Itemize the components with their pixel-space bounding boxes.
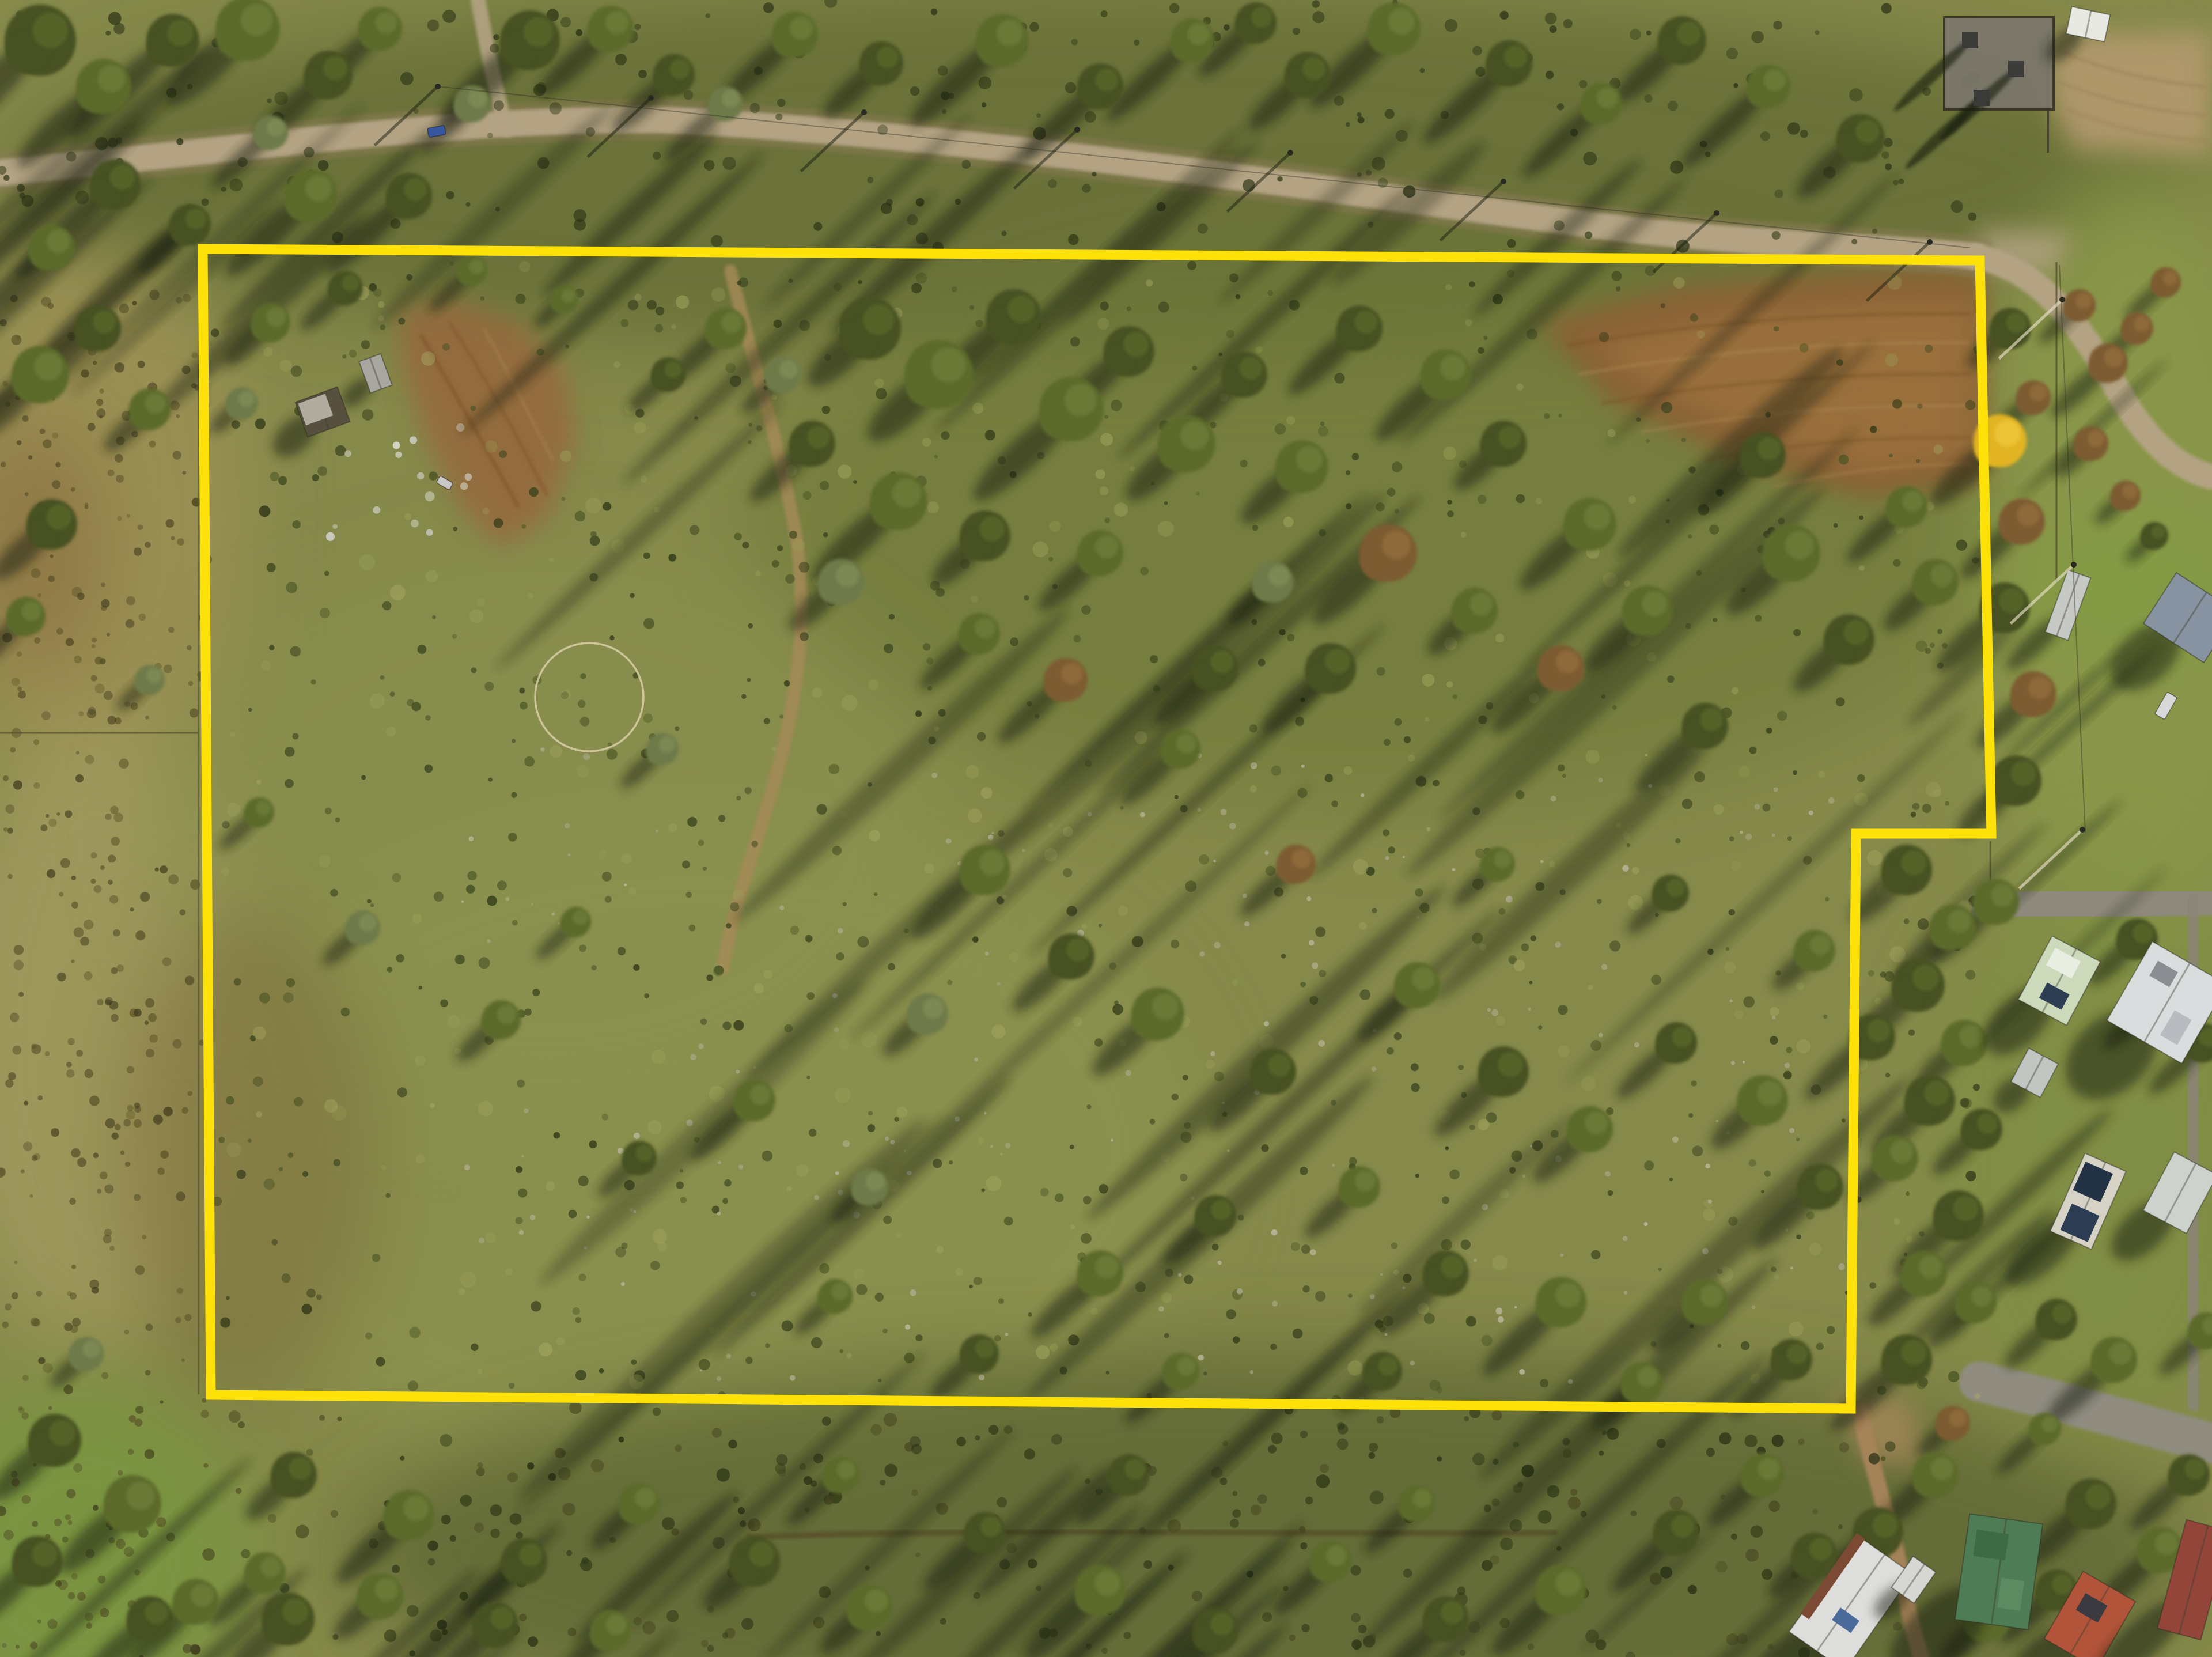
ground-speckle — [839, 1039, 850, 1050]
ground-speckle — [1164, 1333, 1169, 1338]
tree — [1368, 2, 1421, 55]
ground-speckle — [1385, 109, 1395, 119]
ground-speckle — [1081, 1233, 1092, 1244]
ground-speckle — [74, 656, 82, 664]
tree — [1452, 588, 1498, 634]
ground-speckle — [406, 274, 412, 281]
ground-speckle — [853, 480, 857, 484]
ground-speckle — [1275, 423, 1286, 434]
ground-speckle — [1111, 1139, 1113, 1142]
ground-speckle — [1612, 271, 1622, 281]
building-part — [1973, 1530, 2009, 1560]
ground-speckle — [722, 1198, 728, 1204]
ground-speckle — [698, 1043, 704, 1049]
ground-speckle — [181, 1359, 185, 1362]
tree — [1192, 645, 1238, 691]
ground-speckle — [1868, 970, 1874, 977]
tree — [1912, 1452, 1959, 1498]
tree — [851, 1168, 888, 1205]
ground-speckle — [509, 1382, 515, 1389]
ground-speckle — [1608, 1190, 1613, 1196]
ground-speckle — [1118, 906, 1128, 916]
ground-speckle — [334, 1159, 341, 1167]
ground-speckle — [1904, 918, 1910, 924]
tree — [1881, 1334, 1932, 1385]
ground-speckle — [176, 1191, 185, 1201]
ground-speckle — [806, 1076, 810, 1079]
ground-speckle — [255, 418, 266, 429]
ground-speckle — [31, 1044, 36, 1049]
ground-speckle — [812, 687, 822, 698]
ground-speckle — [60, 858, 70, 868]
ground-speckle — [1220, 1478, 1228, 1485]
ground-speckle — [1872, 229, 1877, 234]
tree — [859, 41, 903, 85]
ground-speckle — [1425, 717, 1429, 722]
ground-speckle — [145, 716, 149, 720]
ground-speckle — [1893, 559, 1900, 567]
ground-speckle — [418, 645, 427, 654]
ground-speckle — [202, 1398, 206, 1403]
tree — [1836, 114, 1885, 162]
tree — [169, 204, 211, 245]
tree — [1250, 1049, 1296, 1095]
ground-speckle — [1318, 426, 1328, 436]
tree — [590, 1610, 631, 1651]
tree — [1621, 1362, 1662, 1403]
tree — [2029, 1413, 2061, 1445]
ground-speckle — [707, 1645, 714, 1652]
ground-speckle — [936, 1246, 944, 1253]
ground-speckle — [1106, 1371, 1109, 1374]
ground-speckle — [560, 450, 572, 462]
ground-speckle — [1024, 1448, 1035, 1459]
ground-speckle — [395, 452, 402, 458]
ground-speckle — [33, 782, 40, 789]
ground-speckle — [1658, 1268, 1661, 1271]
ground-speckle — [985, 430, 995, 440]
ground-speckle — [675, 1444, 681, 1451]
ground-speckle — [1839, 455, 1849, 465]
ground-speckle — [429, 471, 438, 481]
ground-speckle — [1609, 940, 1620, 951]
ground-speckle — [1024, 595, 1029, 601]
ground-speckle — [1388, 846, 1395, 853]
ground-speckle — [528, 593, 533, 599]
ground-speckle — [1187, 261, 1196, 270]
ground-speckle — [1310, 1249, 1316, 1255]
ground-speckle — [153, 1115, 163, 1125]
ground-speckle — [1763, 804, 1771, 812]
ground-speckle — [1719, 1432, 1731, 1444]
ground-speckle — [1351, 1613, 1361, 1623]
ground-speckle — [733, 1020, 744, 1031]
tree — [960, 845, 1010, 895]
ground-speckle — [1745, 1549, 1759, 1562]
tree — [28, 1414, 81, 1467]
ground-speckle — [31, 568, 40, 578]
ground-speckle — [410, 436, 417, 444]
ground-speckle — [1210, 422, 1216, 428]
ground-speckle — [256, 1111, 262, 1118]
ground-speckle — [1469, 281, 1475, 287]
ground-speckle — [236, 1488, 242, 1494]
ground-speckle — [1068, 234, 1079, 245]
ground-speckle — [490, 1529, 500, 1538]
tree — [328, 271, 363, 305]
ground-speckle — [292, 733, 298, 739]
ground-speckle — [88, 707, 96, 715]
tree — [1538, 645, 1584, 691]
ground-speckle — [1550, 25, 1557, 33]
ground-speckle — [955, 1268, 963, 1276]
ground-speckle — [499, 450, 507, 458]
ground-speckle — [450, 1535, 457, 1542]
ground-speckle — [686, 892, 692, 898]
ground-speckle — [1973, 1084, 1980, 1091]
ground-speckle — [229, 1410, 241, 1423]
ground-speckle — [724, 1179, 732, 1187]
ground-speckle — [984, 1112, 987, 1114]
ground-speckle — [1104, 415, 1108, 419]
tree — [1394, 962, 1440, 1008]
ground-speckle — [1528, 1644, 1534, 1650]
ground-speckle — [838, 464, 851, 478]
tree — [357, 1573, 403, 1619]
ground-speckle — [969, 305, 974, 310]
ground-speckle — [1391, 1242, 1397, 1249]
ground-speckle — [237, 1170, 246, 1179]
ground-speckle — [1916, 459, 1920, 463]
ground-speckle — [910, 1289, 916, 1296]
ground-speckle — [93, 1153, 99, 1159]
ground-speckle — [1694, 771, 1705, 782]
tree — [960, 1334, 999, 1374]
ground-speckle — [1005, 1143, 1011, 1148]
ground-speckle — [1697, 330, 1705, 338]
ground-speckle — [226, 803, 240, 816]
ground-speckle — [875, 379, 884, 388]
ground-speckle — [1483, 336, 1487, 340]
ground-speckle — [790, 926, 799, 935]
ground-speckle — [1466, 1316, 1476, 1326]
ground-speckle — [915, 1553, 920, 1557]
ground-speckle — [1271, 1229, 1278, 1236]
tree — [818, 559, 864, 605]
ground-speckle — [1898, 179, 1904, 184]
building-part — [1997, 1578, 2024, 1611]
ground-speckle — [1950, 200, 1963, 213]
ground-speckle — [1628, 496, 1636, 504]
ground-speckle — [47, 869, 56, 879]
tree — [765, 356, 802, 393]
ground-speckle — [285, 779, 294, 788]
ground-speckle — [976, 320, 983, 327]
ground-speckle — [528, 1636, 538, 1647]
ground-speckle — [972, 936, 979, 943]
ground-speckle — [1881, 1456, 1886, 1461]
ground-speckle — [18, 691, 26, 699]
ground-speckle — [644, 993, 649, 998]
ground-speckle — [317, 466, 327, 476]
ground-speckle — [342, 354, 346, 358]
ground-speckle — [1331, 800, 1338, 807]
ground-speckle — [1585, 750, 1600, 764]
ground-speckle — [1601, 964, 1607, 970]
ground-speckle — [404, 513, 411, 520]
ground-speckle — [1514, 1306, 1517, 1308]
tree — [2074, 426, 2108, 461]
ground-speckle — [1749, 1159, 1756, 1167]
ground-speckle — [1143, 1560, 1152, 1569]
ground-speckle — [777, 99, 786, 107]
ground-speckle — [836, 952, 844, 960]
ground-speckle — [1063, 868, 1072, 877]
ground-speckle — [1458, 1065, 1464, 1070]
ground-speckle — [1261, 1144, 1268, 1152]
ground-speckle — [505, 897, 509, 901]
ground-speckle — [103, 1235, 112, 1243]
tree — [1941, 1020, 1987, 1066]
ground-speckle — [1271, 766, 1281, 776]
ground-speckle — [165, 519, 174, 528]
ground-speckle — [705, 13, 710, 18]
tree — [2168, 1454, 2210, 1496]
ground-speckle — [1937, 629, 1942, 634]
ground-speckle — [1368, 1452, 1374, 1459]
ground-speckle — [884, 1413, 897, 1426]
ground-speckle — [516, 1217, 523, 1224]
ground-speckle — [160, 1400, 163, 1403]
ground-speckle — [1703, 1209, 1715, 1221]
ground-speckle — [986, 1176, 1002, 1191]
ground-speckle — [1482, 1335, 1493, 1346]
ground-speckle — [471, 1344, 478, 1351]
ground-speckle — [1104, 517, 1110, 523]
ground-speckle — [1, 461, 6, 467]
ground-speckle — [1715, 1561, 1727, 1572]
tree — [501, 1538, 547, 1584]
ground-speckle — [814, 1195, 819, 1200]
ground-speckle — [741, 694, 747, 699]
ground-speckle — [1198, 224, 1208, 234]
ground-speckle — [1809, 1243, 1822, 1255]
tree — [1682, 703, 1728, 749]
ground-speckle — [1249, 724, 1257, 732]
ground-speckle — [633, 964, 639, 971]
ground-speckle — [425, 765, 433, 773]
ground-speckle — [1071, 39, 1078, 45]
ground-speckle — [1616, 286, 1621, 292]
ground-speckle — [392, 1565, 400, 1573]
ground-speckle — [1588, 985, 1593, 990]
ground-speckle — [326, 532, 335, 541]
ground-speckle — [1790, 1266, 1793, 1269]
ground-speckle — [838, 928, 843, 933]
ground-speckle — [362, 409, 374, 421]
ground-speckle — [142, 1235, 146, 1239]
ground-speckle — [263, 347, 272, 357]
ground-speckle — [797, 1164, 809, 1177]
tree — [2066, 1478, 2116, 1529]
ground-speckle — [809, 1129, 816, 1136]
ground-speckle — [884, 1464, 897, 1477]
ground-speckle — [17, 651, 22, 656]
ground-speckle — [398, 318, 405, 325]
ground-speckle — [590, 536, 600, 546]
ground-speckle — [569, 1210, 577, 1218]
ground-speckle — [994, 1335, 1001, 1342]
ground-speckle — [752, 841, 758, 847]
ground-speckle — [745, 787, 752, 794]
ground-speckle — [1836, 359, 1843, 366]
ground-speckle — [1180, 1174, 1187, 1181]
tree — [1075, 1565, 1126, 1616]
ground-speckle — [1343, 766, 1352, 775]
ground-speckle — [578, 1176, 589, 1186]
tree — [622, 1141, 657, 1175]
ground-speckle — [652, 1229, 667, 1244]
ground-speckle — [101, 1372, 108, 1379]
ground-speckle — [1793, 770, 1797, 775]
ground-speckle — [173, 1039, 182, 1049]
tree — [1131, 988, 1184, 1041]
ground-speckle — [1948, 1371, 1960, 1383]
ground-speckle — [41, 711, 50, 720]
ground-speckle — [109, 1246, 115, 1251]
ground-speckle — [713, 966, 724, 977]
ground-speckle — [1184, 1275, 1193, 1284]
ground-speckle — [134, 547, 142, 555]
ground-speckle — [1051, 1434, 1062, 1445]
terrain-patch — [121, 910, 374, 1394]
ground-speckle — [820, 481, 829, 490]
ground-speckle — [1309, 940, 1315, 946]
ground-speckle — [562, 1503, 575, 1516]
ground-speckle — [643, 553, 650, 559]
ground-speckle — [1469, 1125, 1475, 1130]
ground-speckle — [1392, 461, 1402, 472]
tree — [1872, 1135, 1918, 1181]
ground-speckle — [1828, 797, 1835, 804]
ground-speckle — [184, 1314, 191, 1321]
ground-speckle — [1965, 400, 1976, 410]
ground-speckle — [1597, 899, 1602, 904]
ground-speckle — [419, 986, 422, 989]
ground-speckle — [1447, 500, 1452, 505]
ground-speckle — [3, 775, 9, 781]
ground-speckle — [238, 1421, 245, 1428]
ground-speckle — [687, 817, 697, 827]
ground-speckle — [565, 823, 570, 828]
ground-speckle — [428, 1558, 435, 1566]
ground-speckle — [23, 1141, 32, 1151]
ground-speckle — [469, 609, 483, 623]
ground-speckle — [1286, 416, 1295, 425]
ground-speckle — [1334, 373, 1344, 383]
ground-speckle — [1032, 542, 1048, 558]
ground-speckle — [1474, 1258, 1477, 1262]
ground-speckle — [134, 1009, 142, 1017]
ground-speckle — [1816, 1342, 1824, 1350]
ground-speckle — [1968, 213, 1976, 221]
ground-speckle — [68, 1592, 75, 1600]
ground-speckle — [946, 838, 952, 844]
ground-speckle — [17, 686, 22, 691]
ground-speckle — [290, 646, 301, 656]
ground-speckle — [997, 982, 1001, 986]
tree — [226, 387, 258, 419]
ground-speckle — [43, 439, 51, 448]
ground-speckle — [1372, 908, 1377, 914]
ground-speckle — [1250, 785, 1257, 792]
ground-speckle — [816, 804, 827, 815]
ground-speckle — [1581, 1076, 1596, 1091]
ground-speckle — [1682, 799, 1692, 809]
ground-speckle — [480, 296, 484, 301]
tree — [127, 1596, 173, 1642]
ground-speckle — [1606, 1107, 1613, 1115]
ground-speckle — [485, 1233, 495, 1243]
ground-speckle — [94, 885, 102, 893]
tree — [1044, 658, 1088, 702]
ground-speckle — [578, 1274, 586, 1281]
ground-speckle — [750, 103, 760, 114]
ground-speckle — [718, 815, 725, 822]
ground-speckle — [1591, 1250, 1600, 1259]
ground-speckle — [1126, 1070, 1131, 1076]
ground-speckle — [46, 814, 49, 818]
ground-speckle — [722, 1632, 729, 1639]
ground-speckle — [373, 289, 382, 297]
ground-speckle — [330, 889, 338, 897]
ground-speckle — [1004, 1217, 1013, 1226]
ground-speckle — [126, 596, 135, 606]
ground-speckle — [1001, 230, 1006, 236]
ground-speckle — [99, 389, 104, 394]
ground-speckle — [671, 324, 676, 330]
ground-speckle — [378, 301, 384, 308]
ground-speckle — [581, 1557, 589, 1565]
ground-speckle — [1158, 1306, 1164, 1312]
ground-speckle — [634, 294, 641, 301]
ground-speckle — [479, 1238, 484, 1243]
tree — [482, 1000, 521, 1039]
ground-speckle — [128, 1449, 134, 1455]
ground-speckle — [160, 865, 168, 873]
ground-speckle — [1965, 970, 1976, 980]
ground-speckle — [1516, 790, 1524, 799]
ground-speckle — [1036, 113, 1041, 118]
tree — [1747, 65, 1790, 108]
ground-speckle — [67, 1291, 72, 1296]
ground-speckle — [145, 1449, 154, 1459]
tree — [1740, 432, 1786, 478]
ground-speckle — [138, 524, 143, 530]
ground-speckle — [569, 1402, 582, 1414]
tree — [772, 12, 818, 58]
ground-speckle — [609, 635, 614, 640]
ground-speckle — [77, 593, 85, 600]
ground-speckle — [1233, 1491, 1238, 1496]
ground-speckle — [1289, 1635, 1296, 1641]
ground-speckle — [1623, 1236, 1628, 1241]
tree — [959, 613, 1000, 655]
tree — [146, 14, 199, 67]
ground-speckle — [1358, 1625, 1367, 1633]
tree — [904, 340, 974, 409]
tree — [1310, 1541, 1351, 1582]
